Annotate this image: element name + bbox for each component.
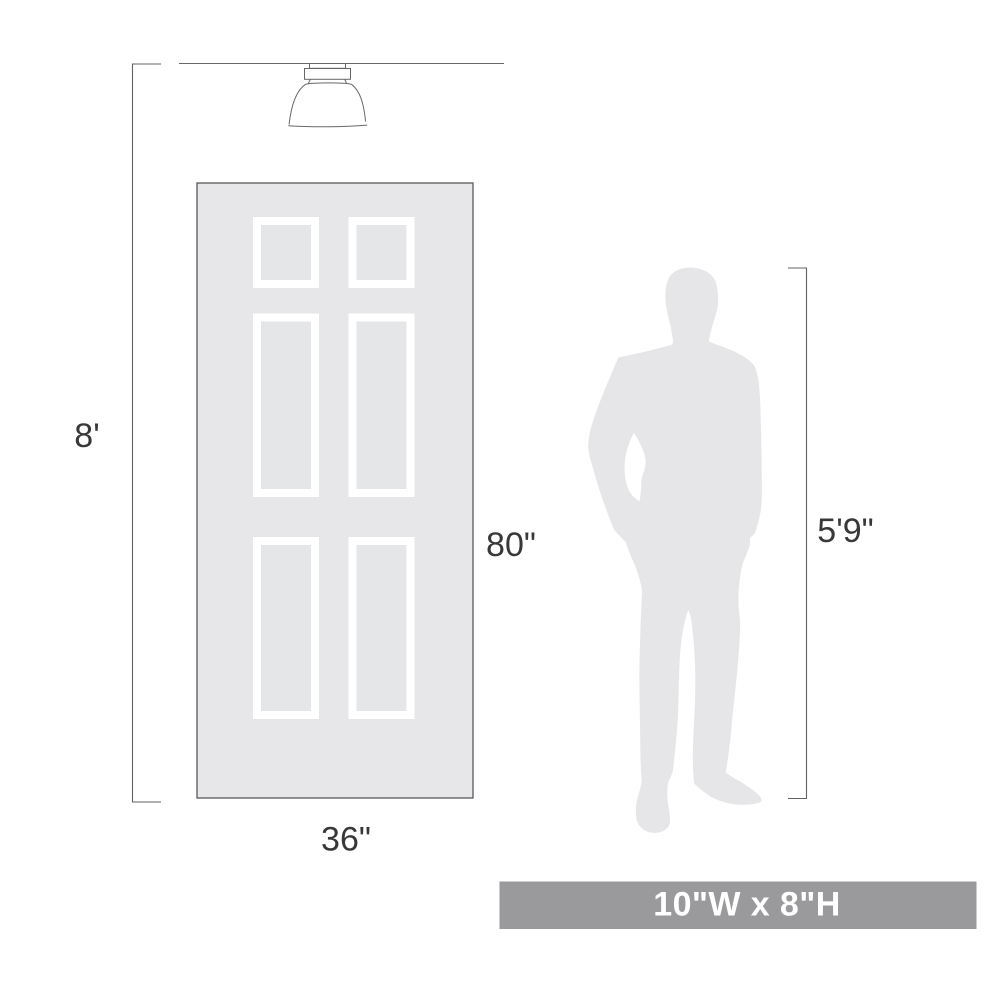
svg-text:8': 8' [74,417,99,455]
svg-text:5'9": 5'9" [817,512,873,550]
svg-text:36": 36" [321,821,371,859]
svg-text:10"W x 8"H: 10"W x 8"H [653,886,840,924]
svg-text:80": 80" [486,526,536,564]
